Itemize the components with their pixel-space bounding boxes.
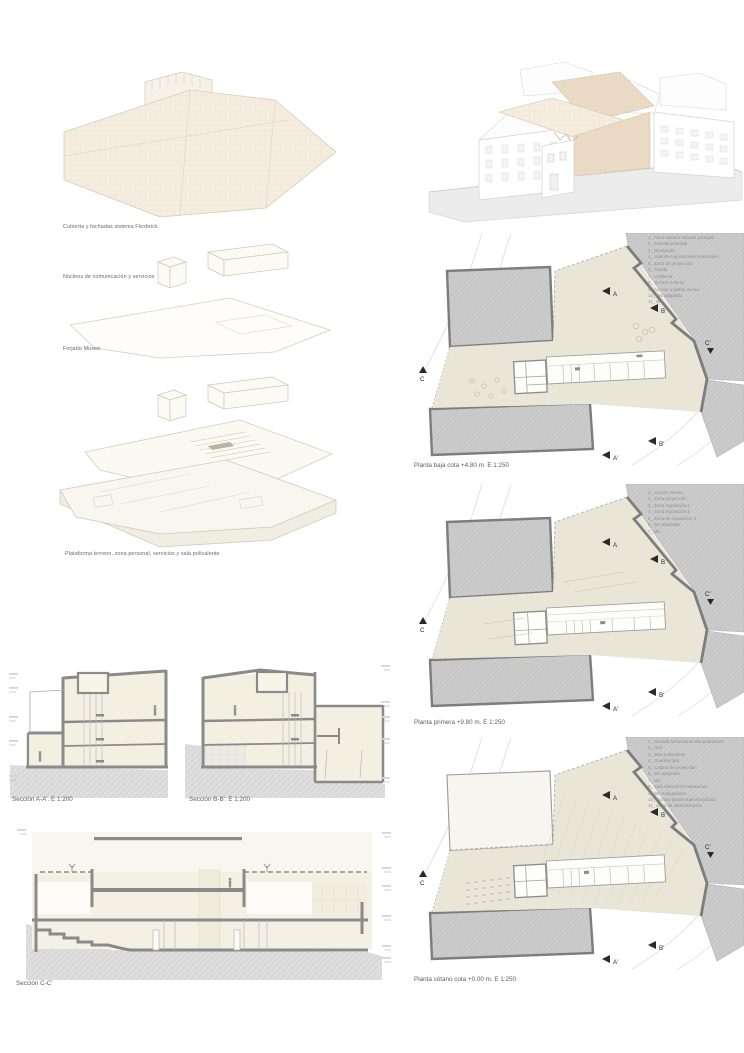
section-c-drawing	[12, 822, 397, 980]
plan-planta-sotano: A B C' C B' A' 1_ Entrada secundaria sal…	[414, 737, 744, 981]
foreground-house	[542, 140, 574, 198]
plan-primera-caption: Planta primera +9.80 m. E 1:250	[414, 719, 505, 726]
marker-b: B	[661, 308, 665, 315]
marker-c: C	[420, 376, 425, 383]
context-axonometric-view	[424, 50, 744, 230]
marker-b-prime: B'	[659, 441, 664, 448]
plan-primera-legend: 1_ Acceso museo 2_ Zona proyección 3_ Zo…	[648, 490, 742, 535]
ground-hatch	[10, 765, 168, 798]
interior-fill-wing	[315, 706, 383, 781]
presentation-board: Cubierta y fachadas sistema Flexbrick Nú…	[0, 0, 744, 1053]
plan-baja-caption: Planta baja cota +4.80 m. E 1:250	[414, 462, 509, 469]
marker-c: C	[420, 880, 425, 887]
plan-sotano-caption: Planta sótano cota +0.00 m. E 1:250	[414, 976, 516, 983]
marker-a-prime: A'	[613, 706, 618, 713]
section-b-b: Sección B-B'. E 1:200	[185, 648, 390, 806]
right-facade	[654, 112, 734, 178]
marker-c: C	[420, 627, 425, 634]
exploded-axonometric-diagram: Cubierta y fachadas sistema Flexbrick Nú…	[40, 10, 385, 595]
service-boxes-upper	[158, 244, 288, 288]
museum-slab	[70, 298, 330, 358]
marker-a-prime: A'	[613, 455, 618, 462]
service-boxes-lower	[158, 377, 288, 421]
roof-plane	[64, 90, 336, 217]
context-axon-drawing	[424, 50, 744, 230]
section-a-a: Sección A-A'. E 1:200	[8, 648, 183, 806]
marker-c-prime: C'	[705, 591, 711, 598]
axon-label-roof: Cubierta y fachadas sistema Flexbrick	[63, 224, 158, 230]
section-a-caption: Sección A-A'. E 1:200	[12, 796, 73, 803]
lightwell	[78, 673, 108, 693]
plan-baja-legend: 1_ Patio exterior entrada principal 2_ E…	[648, 235, 742, 306]
exploded-axon-drawing	[40, 10, 385, 595]
railing	[30, 690, 64, 733]
marker-c-prime: C'	[705, 844, 711, 851]
back-wall-panel	[312, 882, 367, 917]
terrain-platform	[60, 460, 336, 547]
plan-sotano-legend: 1_ Entrada secundaria sala polivalente 2…	[648, 739, 742, 810]
legend-item: 7_ Wc	[648, 529, 742, 535]
marker-b: B	[661, 812, 665, 819]
marker-b: B	[661, 559, 665, 566]
section-b-caption: Sección B-B'. E 1:200	[189, 796, 250, 803]
roof-slab-bar	[94, 837, 242, 840]
marker-a-prime: A'	[613, 959, 618, 966]
ground-hatch-left	[185, 744, 201, 798]
level-marks	[9, 673, 18, 780]
axon-label-platform: Plataforma terreno, zona personal, servi…	[65, 551, 220, 557]
void-left	[37, 882, 90, 914]
section-a-drawing	[8, 648, 183, 798]
lightwell	[257, 672, 287, 692]
section-b-drawing	[185, 648, 390, 798]
legend-item: 11_ Wc	[648, 299, 742, 305]
axon-label-cores: Núcleos de comunicación y servicios	[63, 274, 155, 280]
marker-b-prime: B'	[659, 945, 664, 952]
section-c-c: Sección C-C'	[12, 822, 397, 994]
plan-planta-baja: A B C' C B' A' 1_ Patio exterior entrada…	[414, 233, 744, 477]
human-figure	[229, 878, 232, 888]
legend-item: 11_ Zona de administración	[648, 803, 742, 809]
marker-b-prime: B'	[659, 692, 664, 699]
axon-label-slab: Forjado Museo	[63, 346, 100, 352]
marker-c-prime: C'	[705, 340, 711, 347]
plan-planta-primera: A B C' C B' A' 1_ Acceso museo 2_ Zona p…	[414, 484, 744, 728]
human-figures	[234, 705, 237, 715]
core-column	[199, 870, 220, 950]
section-c-caption: Sección C-C'	[16, 980, 53, 987]
